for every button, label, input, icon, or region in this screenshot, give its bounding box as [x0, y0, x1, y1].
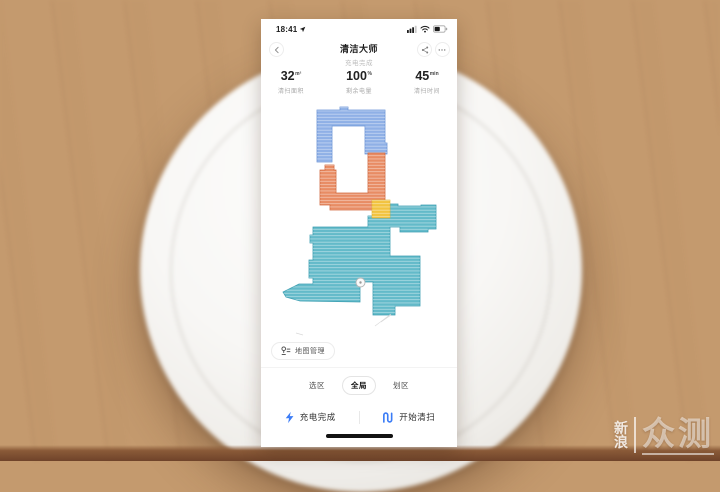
stat-time: 45min 清扫时间 [414, 69, 440, 95]
charge-status-label: 充电完成 [300, 411, 336, 423]
action-bar: 充电完成 开始清扫 [261, 404, 457, 430]
phone-screenshot: 18:41 [261, 19, 457, 447]
wifi-icon [420, 25, 430, 33]
map-room-teal-paths [283, 204, 436, 315]
robot-marker[interactable] [356, 278, 365, 287]
stat-battery: 100% 剩余电量 [346, 69, 372, 95]
more-icon [438, 46, 446, 54]
tab-select-area[interactable]: 选区 [309, 380, 325, 391]
watermark-brand-small: 新 浪 [614, 421, 628, 450]
stat-time-value: 45 [415, 69, 429, 83]
status-bar: 18:41 [261, 23, 457, 35]
stat-battery-label: 剩余电量 [346, 86, 372, 95]
map-trail-marks [296, 314, 391, 335]
start-clean-label: 开始清扫 [399, 411, 435, 423]
sheet-divider [261, 367, 457, 368]
route-icon [381, 411, 394, 424]
charge-status-button[interactable]: 充电完成 [261, 411, 359, 424]
wood-foreground-strip [0, 445, 720, 461]
watermark: 新 浪 众测 [614, 416, 714, 455]
status-time: 18:41 [276, 25, 297, 34]
signal-icon [407, 25, 417, 33]
start-clean-button[interactable]: 开始清扫 [360, 411, 458, 424]
map-pin-icon [281, 346, 291, 356]
stat-battery-value: 100 [346, 69, 367, 83]
stats-row: 32m² 清扫面积 100% 剩余电量 45min 清扫时间 [261, 69, 457, 95]
stat-time-unit: min [430, 71, 439, 77]
battery-icon [433, 25, 448, 33]
more-button[interactable] [435, 42, 450, 57]
location-arrow-icon [299, 26, 306, 33]
share-icon [421, 46, 429, 54]
stat-area-value: 32 [281, 69, 295, 83]
lightning-icon [284, 411, 295, 424]
watermark-brand-large: 众测 [642, 416, 714, 455]
stat-battery-unit: % [367, 71, 371, 77]
mode-tabs: 选区 全局 划区 [261, 376, 457, 394]
stat-area-label: 清扫面积 [278, 86, 304, 95]
share-button[interactable] [417, 42, 432, 57]
page-subtitle: 充电完成 [261, 57, 457, 67]
stat-area: 32m² 清扫面积 [278, 69, 304, 95]
map-room-yellow-paths [372, 200, 390, 218]
map-manage-label: 地图管理 [295, 346, 325, 356]
tab-zone[interactable]: 划区 [393, 380, 409, 391]
home-indicator[interactable] [326, 434, 393, 438]
nav-bar: 清洁大师 充电完成 [261, 39, 457, 65]
watermark-divider [634, 417, 636, 453]
tab-global[interactable]: 全局 [342, 376, 376, 395]
map-manage-button[interactable]: 地图管理 [271, 342, 335, 360]
stat-time-label: 清扫时间 [414, 86, 440, 95]
stat-area-unit: m² [295, 71, 301, 77]
watermark-char-2: 浪 [614, 435, 628, 449]
cleaning-map[interactable] [275, 103, 440, 343]
